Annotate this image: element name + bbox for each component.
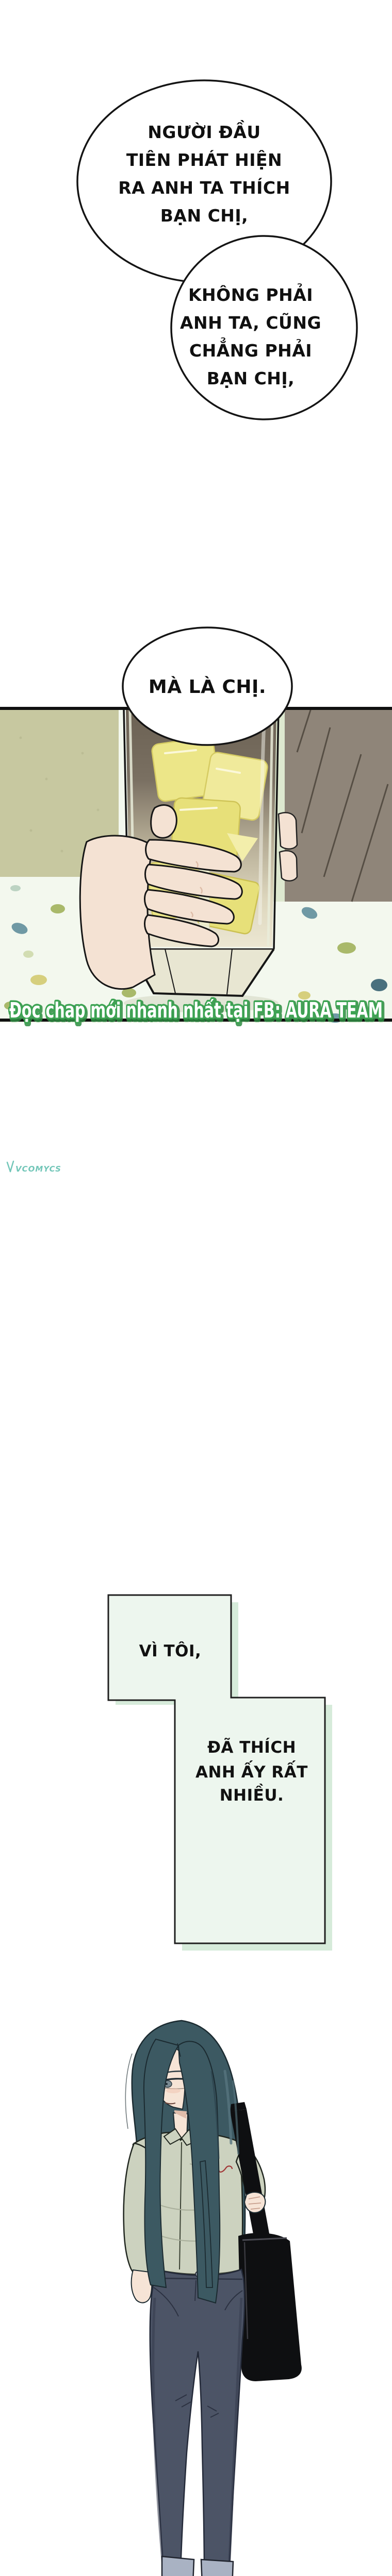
bubble1-line-1: NGƯỜI ĐẦU bbox=[148, 120, 260, 142]
palm bbox=[80, 836, 155, 989]
credit-banner: Đọc chap mới nhanh nhất tại FB: AURA TEA… bbox=[0, 987, 392, 1032]
bubble3-line-1: MÀ LÀ CHỊ. bbox=[149, 676, 266, 698]
caption-box-group: VÌ TÔI, ĐÃ THÍCH ANH ẤY RẤT NHIỀU. bbox=[0, 1571, 392, 1978]
sketch-contour-line bbox=[125, 2054, 132, 2129]
speech-bubble-group: NGƯỜI ĐẦU TIÊN PHÁT HIỆN RA ANH TA THÍCH… bbox=[0, 0, 392, 464]
caption-box-2-line-1: ĐÃ THÍCH bbox=[207, 1738, 296, 1757]
jeans bbox=[150, 2269, 244, 2576]
bubble1-line-4: BẠN CHỊ, bbox=[160, 206, 248, 226]
tote-bag bbox=[238, 2233, 302, 2381]
fingertips-right bbox=[279, 812, 297, 880]
blush bbox=[166, 2088, 181, 2093]
caption-box-2-line-2: ANH ẤY RẤT bbox=[195, 1761, 308, 1782]
right-hand bbox=[244, 2192, 265, 2213]
caption-box-1-line-1: VÌ TÔI, bbox=[139, 1641, 202, 1660]
bubble2-line-3: CHẲNG PHẢI bbox=[189, 337, 312, 361]
panel-illustration bbox=[0, 707, 392, 1023]
watermark-side: VCOMYCS bbox=[2, 1159, 85, 1178]
bubble2-line-4: BẠN CHỊ, bbox=[207, 368, 295, 388]
webtoon-page: NGƯỜI ĐẦU TIÊN PHÁT HIỆN RA ANH TA THÍCH… bbox=[0, 0, 392, 2576]
credit-text: Đọc chap mới nhanh nhất tại FB: AURA TEA… bbox=[9, 998, 383, 1023]
speech-bubble-3-layer: MÀ LÀ CHỊ. bbox=[0, 621, 392, 752]
bubble2-line-2: ANH TA, CŨNG bbox=[180, 312, 321, 333]
bubble2-line-1: KHÔNG PHẢI bbox=[188, 283, 313, 305]
bubble1-line-2: TIÊN PHÁT HIỆN bbox=[126, 149, 282, 170]
watermark-side-text: VCOMYCS bbox=[15, 1164, 61, 1174]
pupil bbox=[166, 2083, 168, 2085]
watermark-side-leaf-icon bbox=[7, 1161, 13, 1172]
bubble1-line-3: RA ANH TA THÍCH bbox=[118, 177, 290, 198]
caption-box-2-line-3: NHIỀU. bbox=[220, 1784, 284, 1805]
thumb bbox=[151, 805, 177, 838]
character-illustration bbox=[0, 2009, 392, 2576]
